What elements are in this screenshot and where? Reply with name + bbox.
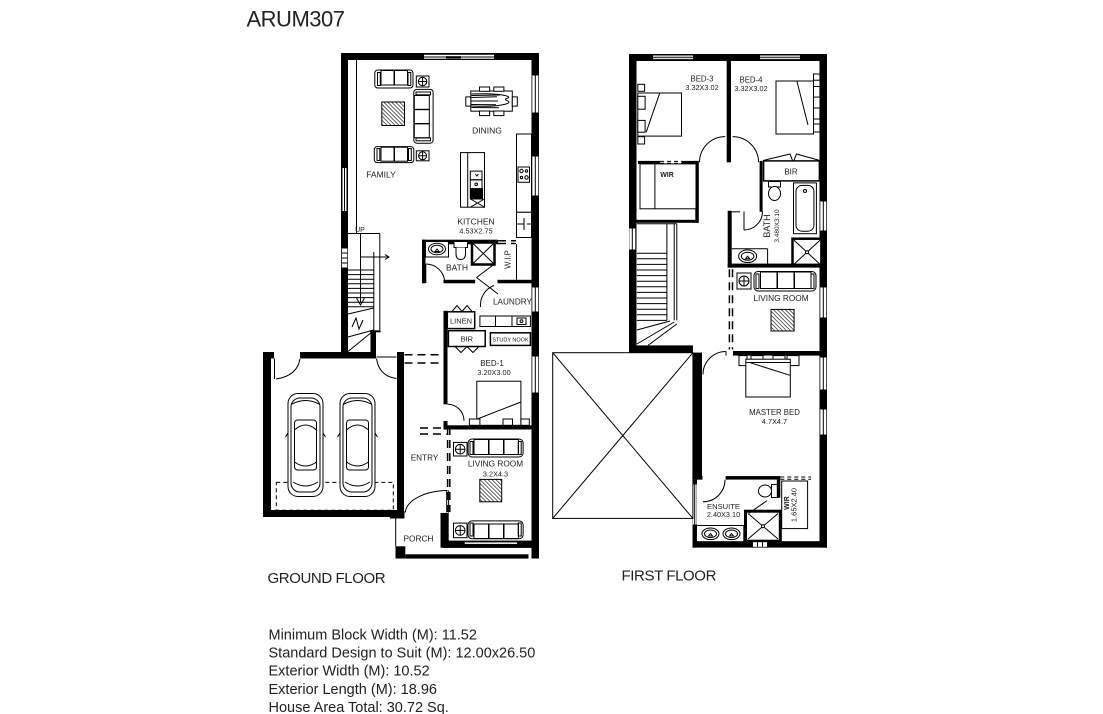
svg-text:KITCHEN: KITCHEN [457, 217, 494, 227]
svg-text:W.I.P: W.I.P [504, 250, 513, 269]
svg-text:LIVING ROOM: LIVING ROOM [753, 293, 808, 303]
svg-text:Standard Design to Suit (M): 1: Standard Design to Suit (M): 12.00x26.50 [269, 646, 536, 662]
svg-text:FAMILY: FAMILY [366, 170, 396, 180]
svg-text:BATH: BATH [446, 263, 468, 273]
svg-text:LINEN: LINEN [450, 317, 472, 326]
svg-text:3.32X3.02: 3.32X3.02 [734, 84, 767, 93]
svg-text:UP: UP [355, 227, 365, 234]
svg-text:MASTER BED: MASTER BED [749, 408, 800, 417]
svg-text:Exterior Width (M): 10.52: Exterior Width (M): 10.52 [269, 664, 430, 680]
svg-text:STUDY NOOK: STUDY NOOK [492, 337, 529, 343]
svg-text:Exterior Length (M): 18.96: Exterior Length (M): 18.96 [269, 682, 437, 698]
svg-text:House Area Total: 30.72 Sq.: House Area Total: 30.72 Sq. [269, 700, 449, 714]
svg-text:BED-1: BED-1 [480, 359, 504, 368]
svg-text:BED-4: BED-4 [740, 76, 764, 85]
svg-text:Minimum Block Width (M): 11.52: Minimum Block Width (M): 11.52 [269, 628, 477, 644]
svg-text:PORCH: PORCH [404, 534, 434, 544]
svg-text:2.40X3.10: 2.40X3.10 [707, 510, 740, 519]
svg-text:BED-3: BED-3 [691, 75, 714, 84]
svg-text:DINING: DINING [472, 126, 502, 136]
svg-text:3.32X3.02: 3.32X3.02 [685, 83, 718, 92]
svg-text:4.7X4.7: 4.7X4.7 [762, 417, 787, 426]
svg-text:4.53X2.75: 4.53X2.75 [459, 226, 492, 235]
svg-text:3.480X3.10: 3.480X3.10 [774, 209, 781, 243]
svg-text:BIR: BIR [784, 167, 798, 176]
svg-text:ENTRY: ENTRY [411, 454, 439, 463]
svg-text:1.65X2.40: 1.65X2.40 [790, 488, 799, 522]
svg-text:GROUND FLOOR: GROUND FLOOR [268, 570, 386, 587]
svg-text:ARUM307: ARUM307 [247, 7, 345, 32]
svg-text:WIR: WIR [660, 172, 674, 179]
svg-text:LIVING ROOM: LIVING ROOM [468, 459, 523, 469]
svg-text:3.20X3.00: 3.20X3.00 [477, 368, 510, 377]
svg-text:FIRST FLOOR: FIRST FLOOR [622, 568, 717, 585]
svg-text:3.2X4.3: 3.2X4.3 [483, 469, 508, 478]
svg-text:BIR: BIR [461, 335, 474, 344]
svg-text:LAUNDRY: LAUNDRY [493, 298, 533, 307]
svg-text:BATH: BATH [762, 214, 772, 237]
